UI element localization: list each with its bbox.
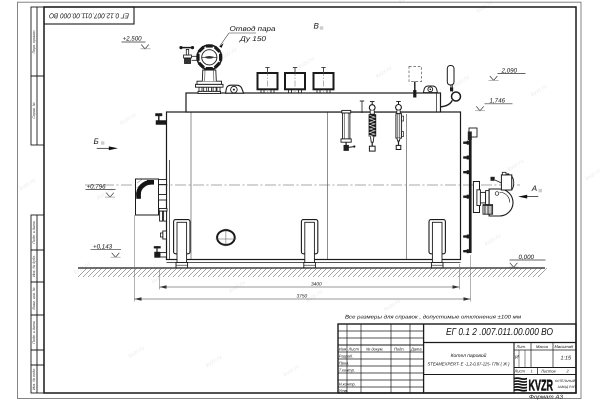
svg-text:Масштаб: Масштаб [555, 344, 574, 349]
svg-text:Формат А3: Формат А3 [529, 394, 563, 400]
svg-text:КОТЕЛЬНЫЙ: КОТЕЛЬНЫЙ [555, 379, 576, 383]
svg-text:Н.контр.: Н.контр. [339, 382, 356, 387]
svg-text:Подп. и дата: Подп. и дата [32, 221, 36, 244]
svg-text:1:15: 1:15 [561, 356, 572, 362]
svg-text:А: А [531, 184, 537, 193]
svg-text:Инв. № подл.: Инв. № подл. [32, 368, 36, 390]
svg-text:Инв. № дубл.: Инв. № дубл. [32, 255, 36, 277]
svg-text:Дата: Дата [410, 347, 422, 352]
svg-text:STEAMEXPERT- Е -1,2-0,07-115-: STEAMEXPERT- Е -1,2-0,07-115- ГЛК ( Ж ) [428, 362, 510, 367]
svg-text:Подп.: Подп. [394, 347, 405, 352]
svg-text:1: 1 [531, 369, 533, 374]
svg-text:ЕГ 0.1 2 .007.011.00.000 ВО: ЕГ 0.1 2 .007.011.00.000 ВО [446, 327, 553, 338]
svg-text:№ докум.: № докум. [366, 347, 384, 352]
svg-text:Листов: Листов [540, 369, 556, 374]
svg-text:3400: 3400 [311, 281, 322, 287]
svg-text:Пров.: Пров. [339, 361, 350, 366]
svg-text:Разраб.: Разраб. [339, 354, 353, 359]
svg-text:Все размеры для справок , допу: Все размеры для справок , допустимые отк… [345, 314, 522, 320]
svg-text:Утв.: Утв. [339, 388, 348, 393]
svg-text:Ду 150: Ду 150 [239, 36, 266, 43]
svg-text:Лист: Лист [514, 369, 526, 374]
svg-text:ЕГ 0.12.007.011.00.000 ВО: ЕГ 0.12.007.011.00.000 ВО [48, 12, 129, 19]
svg-text:Лит.: Лит. [516, 344, 526, 349]
svg-text:KVZR: KVZR [529, 377, 554, 394]
svg-text:Т.контр.: Т.контр. [339, 368, 355, 373]
svg-text:Перв. примен.: Перв. примен. [32, 30, 36, 54]
svg-text:Котел паровой: Котел паровой [451, 353, 487, 359]
svg-text:Б: Б [94, 137, 99, 146]
svg-text:Лист: Лист [348, 347, 360, 352]
svg-text:Отвод пара: Отвод пара [230, 25, 276, 33]
svg-text:Масса: Масса [536, 344, 549, 349]
svg-text:Взам. инв. №: Взам. инв. № [32, 287, 36, 309]
svg-text:В: В [314, 22, 320, 31]
svg-text:3750: 3750 [297, 293, 308, 299]
svg-text:Изм.: Изм. [339, 347, 348, 352]
svg-text:ЗАВОД РЭП: ЗАВОД РЭП [558, 385, 577, 389]
svg-text:Справ. №: Справ. № [32, 102, 36, 118]
svg-text:Подп. и дата: Подп. и дата [32, 321, 36, 344]
svg-text:И: И [515, 355, 519, 361]
